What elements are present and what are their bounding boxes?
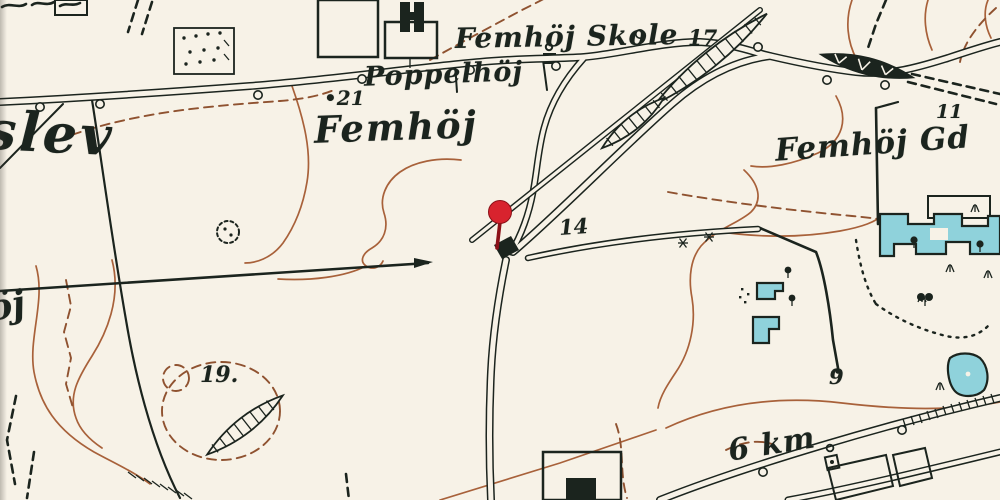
plantation-plot bbox=[174, 28, 234, 74]
roads bbox=[0, 42, 1000, 500]
spot-height-19: 19. bbox=[200, 364, 238, 386]
gd-elevation: 11 bbox=[936, 103, 962, 122]
femhoj-label: Femhöj bbox=[313, 106, 478, 149]
school-elevation: 17 bbox=[688, 27, 717, 48]
boundary-number-9: 9 bbox=[829, 366, 844, 387]
map: slev öj Femhöj Skole 17 Poppelhöj •21 Fe… bbox=[0, 0, 1000, 500]
tumulus-icon bbox=[217, 221, 239, 243]
road-number-14: 14 bbox=[558, 215, 589, 238]
mill-symbol bbox=[400, 2, 424, 32]
long-barrow-symbol bbox=[202, 389, 287, 461]
town-label-fragment: slev bbox=[0, 103, 116, 164]
spot-height-21: •21 bbox=[324, 88, 365, 108]
school-label: Femhöj Skole bbox=[455, 21, 679, 53]
poppelhoj-label: Poppelhöj bbox=[364, 58, 524, 91]
illegible-label-fragment bbox=[2, 2, 80, 7]
